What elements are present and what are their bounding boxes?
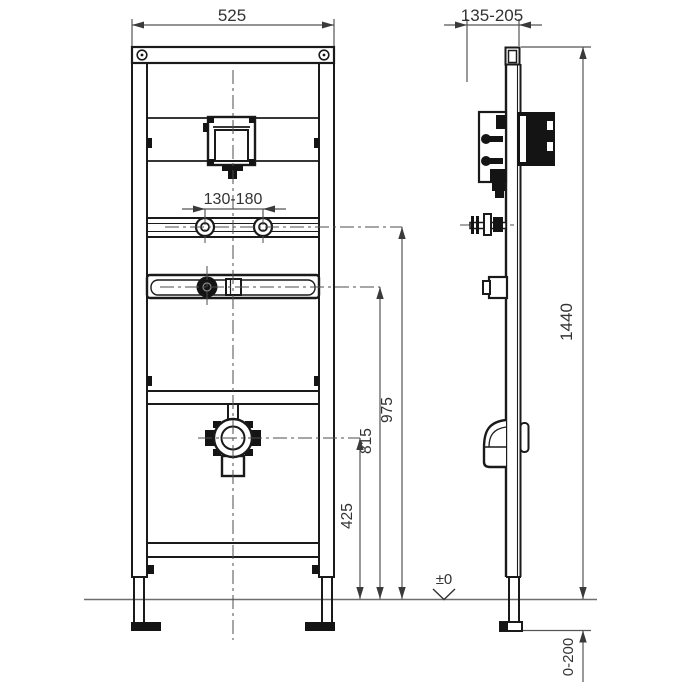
dim-label-drain-height: 425 <box>339 503 356 529</box>
dim-bolt-spacing: 130-180 <box>182 191 286 218</box>
drawing-canvas: 525 135-205 130-180 975 815 425 <box>0 0 700 700</box>
top-rail <box>132 47 334 63</box>
dim-fixing-height: 975 <box>379 227 406 599</box>
dim-foot-adjustment: 0-200 <box>523 631 591 683</box>
flush-valve-box <box>203 117 255 179</box>
screw-icon <box>137 50 147 60</box>
centerlines <box>160 70 402 640</box>
dim-label-foot-adjustment: 0-200 <box>560 638 577 676</box>
dim-label-bolt-spacing: 130-180 <box>204 191 263 208</box>
side-inlet-fitting <box>483 277 507 298</box>
dim-label-frame-width: 525 <box>218 6 246 25</box>
side-view <box>460 48 555 632</box>
side-foot <box>500 577 522 631</box>
technical-drawing: 525 135-205 130-180 975 815 425 <box>0 0 700 700</box>
dim-drain-height: 425 <box>339 438 364 599</box>
screw-icon <box>319 50 329 60</box>
dim-label-wall-distance: 135-205 <box>461 6 523 25</box>
dim-frame-width: 525 <box>132 6 334 46</box>
dim-label-fixing-height: 975 <box>379 397 396 423</box>
dim-inlet-height: 815 <box>358 287 384 599</box>
side-cistern-box <box>517 112 555 166</box>
floor-level-marker: ±0 <box>433 571 455 600</box>
dim-wall-distance: 135-205 <box>444 6 542 82</box>
dim-label-frame-height: 1440 <box>557 303 576 341</box>
side-flush-unit <box>479 112 506 198</box>
front-view <box>131 47 402 640</box>
dim-label-floor-level: ±0 <box>436 571 453 588</box>
